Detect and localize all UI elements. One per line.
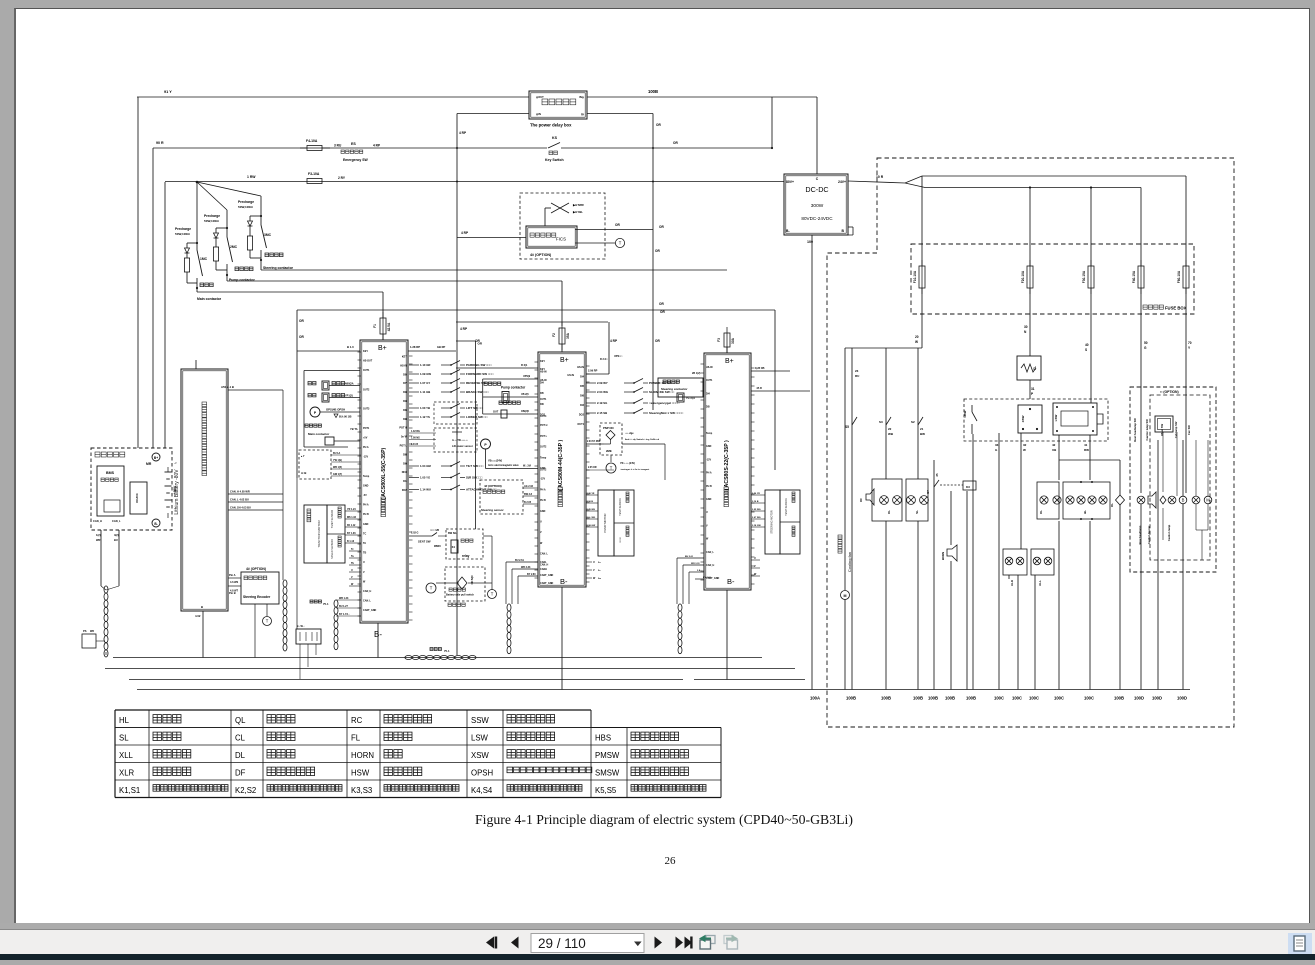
- svg-text:29 / 110: 29 / 110: [538, 936, 586, 951]
